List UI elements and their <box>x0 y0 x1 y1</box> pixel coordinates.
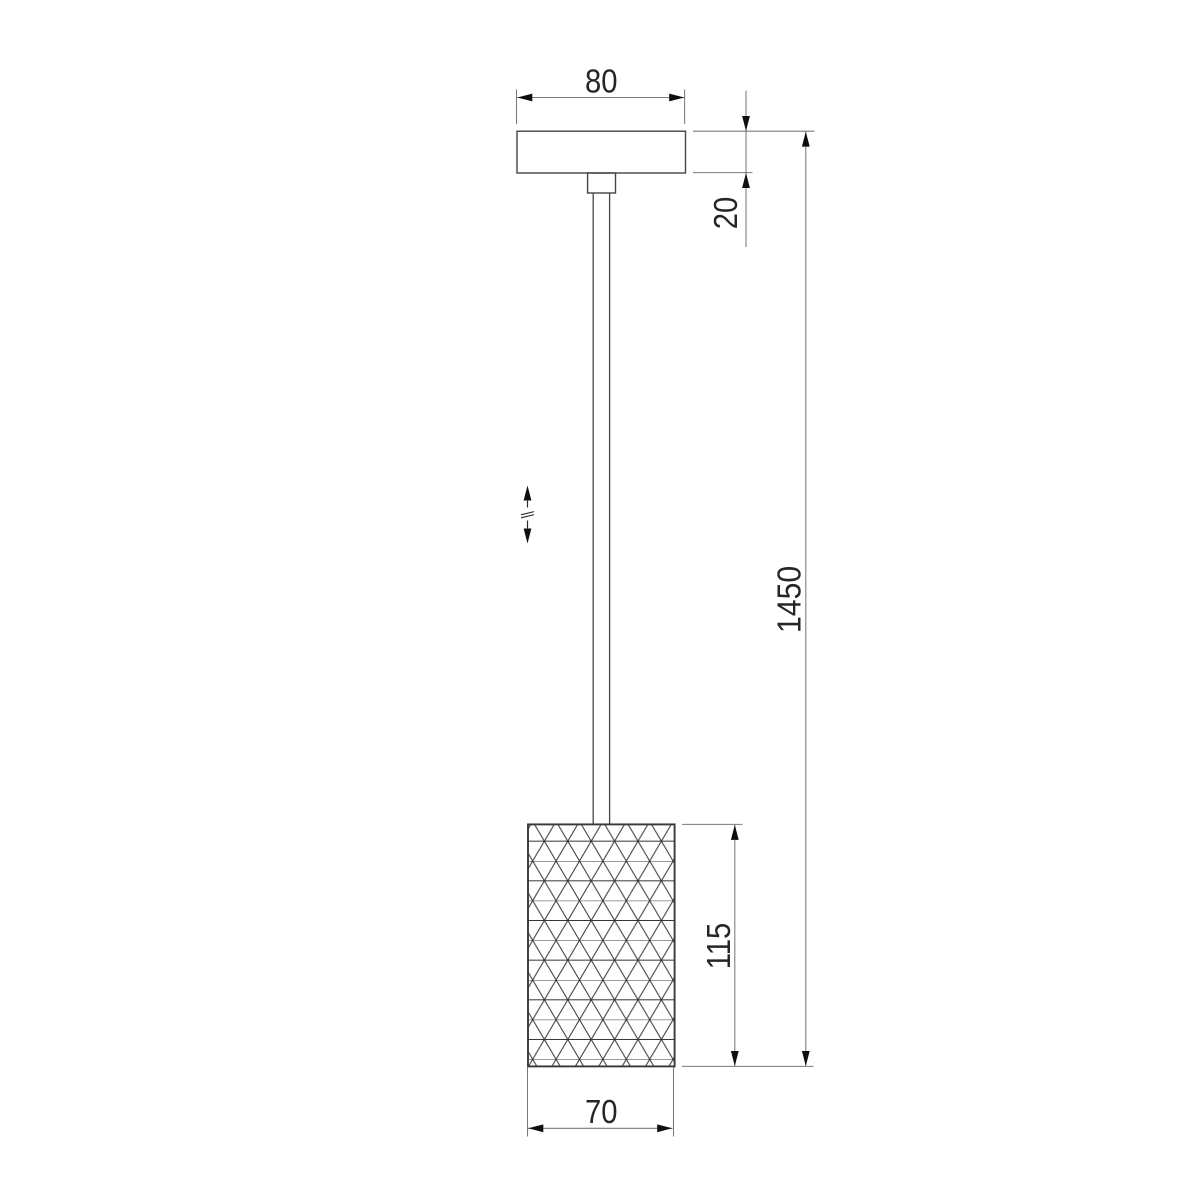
svg-text:70: 70 <box>585 1093 617 1130</box>
svg-text:1450: 1450 <box>770 566 808 633</box>
svg-text:115: 115 <box>700 923 737 970</box>
svg-text:80: 80 <box>585 63 617 100</box>
svg-text:20: 20 <box>707 197 744 229</box>
